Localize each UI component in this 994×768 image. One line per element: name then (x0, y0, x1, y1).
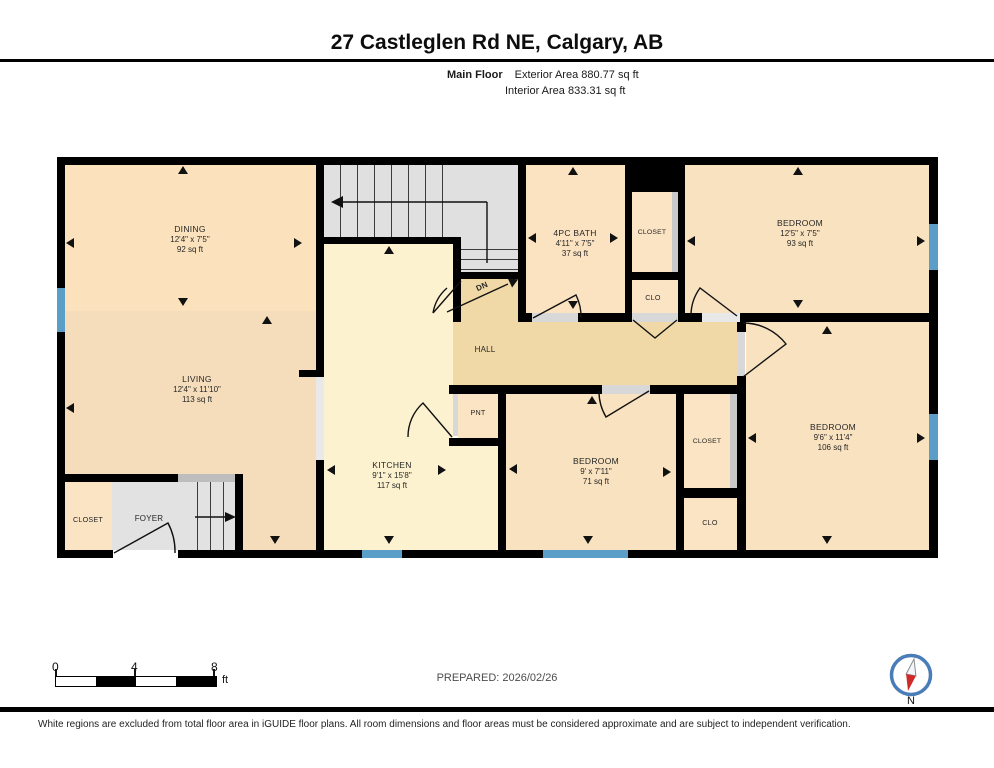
wall-segment (518, 313, 532, 322)
opening-jamb (316, 377, 324, 460)
stairs-landing-treads (454, 240, 518, 270)
wall-segment (498, 385, 506, 550)
page-title: 27 Castleglen Rd NE, Calgary, AB (0, 31, 994, 55)
clo-mid-label: CLO (685, 518, 735, 527)
foyer-landing (178, 474, 235, 482)
exterior-area: Exterior Area 880.77 sq ft (515, 69, 639, 81)
wall-segment (57, 157, 65, 558)
dimension-arrow (568, 167, 578, 175)
room-kitchen (324, 244, 453, 550)
wall-segment (453, 237, 461, 322)
wall-segment (737, 322, 746, 332)
room-dims: 9'1" x 15'8" (332, 471, 452, 481)
window-marker (929, 414, 938, 460)
clo-top-label: CLO (633, 293, 673, 302)
wall-segment (737, 376, 746, 550)
floor-label: Main Floor (447, 69, 503, 81)
wall-segment (316, 460, 324, 550)
wall-segment (454, 272, 518, 279)
door-jamb (738, 332, 745, 376)
wall-segment (57, 550, 938, 558)
dimension-arrow (748, 433, 756, 443)
wall-segment (235, 474, 243, 550)
room-name: LIVING (137, 374, 257, 385)
wall-segment (676, 394, 684, 550)
compass-icon (888, 652, 934, 698)
header-divider (0, 59, 994, 62)
room-area: 71 sq ft (536, 477, 656, 487)
bath-label: 4PC BATH 4'11" x 7'5" 37 sq ft (515, 228, 635, 260)
floorplan-page: 27 Castleglen Rd NE, Calgary, AB Main Fl… (0, 0, 994, 768)
room-area: 113 sq ft (137, 395, 257, 405)
dimension-arrow (793, 300, 803, 308)
room-dims: 9' x 7'11" (536, 467, 656, 477)
dimension-arrow (294, 238, 302, 248)
dimension-arrow (822, 536, 832, 544)
window-marker (57, 288, 65, 332)
prepared-date: PREPARED: 2026/02/26 (0, 672, 994, 684)
dimension-arrow (384, 246, 394, 254)
wall-segment (678, 313, 702, 322)
kitchen-label: KITCHEN 9'1" x 15'8" 117 sq ft (332, 460, 452, 492)
wall-segment (449, 385, 602, 394)
room-dims: 9'6" x 11'4" (773, 433, 893, 443)
dimension-arrow (270, 536, 280, 544)
foyer-label: FOYER (118, 514, 180, 523)
dimension-arrow (262, 316, 272, 324)
compass-north-label: N (903, 695, 919, 707)
room-name: KITCHEN (332, 460, 452, 471)
dimension-arrow (178, 298, 188, 306)
bifold-front (632, 313, 678, 322)
room-name: BEDROOM (740, 218, 860, 229)
wall-segment (650, 385, 737, 394)
dimension-arrow (178, 166, 188, 174)
dimension-arrow (917, 236, 925, 246)
room-name: DINING (130, 224, 250, 235)
entry-door-opening (113, 550, 178, 558)
room-name: 4PC BATH (515, 228, 635, 239)
wall-segment (632, 272, 678, 280)
room-name: BEDROOM (536, 456, 656, 467)
room-area: 92 sq ft (130, 245, 250, 255)
footer-divider (0, 707, 994, 712)
dimension-arrow (66, 403, 74, 413)
closet-entry-label: CLOSET (58, 515, 118, 524)
room-kitchen-lower (453, 446, 498, 550)
floor-summary: Main FloorExterior Area 880.77 sq ft (447, 69, 639, 81)
hall-label: HALL (455, 345, 515, 354)
room-area: 106 sq ft (773, 443, 893, 453)
dining-label: DINING 12'4" x 7'5" 92 sq ft (130, 224, 250, 256)
room-area: 37 sq ft (515, 249, 635, 259)
room-dims: 12'5" x 7'5" (740, 229, 860, 239)
window-marker (543, 550, 628, 558)
wall-segment (929, 157, 938, 558)
closet-mid-label: CLOSET (682, 438, 732, 445)
dimension-arrow (509, 464, 517, 474)
wall-segment (57, 157, 938, 165)
room-dims: 12'4" x 7'5" (130, 235, 250, 245)
wall-segment (299, 370, 316, 377)
wall-segment (578, 313, 632, 322)
wall-segment (316, 165, 324, 377)
wall-segment (678, 165, 685, 322)
bedroom-center-label: BEDROOM 9' x 7'11" 71 sq ft (536, 456, 656, 488)
room-name: BEDROOM (773, 422, 893, 433)
room-area: 93 sq ft (740, 239, 860, 249)
wall-segment (740, 313, 929, 322)
foyer-stairs (185, 482, 235, 550)
dimension-arrow (793, 167, 803, 175)
dimension-arrow (663, 467, 671, 477)
dimension-arrow (687, 236, 695, 246)
room-dims: 12'4" x 11'10" (137, 385, 257, 395)
wall-segment (676, 488, 737, 498)
door-jamb (532, 313, 578, 322)
interior-area: Interior Area 833.31 sq ft (505, 85, 625, 97)
disclaimer-text: White regions are excluded from total fl… (38, 719, 978, 730)
dimension-arrow (384, 536, 394, 544)
closet-top-label: CLOSET (630, 229, 674, 236)
door-jamb (702, 313, 740, 322)
bedroom-top-right-label: BEDROOM 12'5" x 7'5" 93 sq ft (740, 218, 860, 250)
dimension-arrow (587, 396, 597, 404)
dimension-arrow (568, 301, 578, 309)
wall-segment (632, 165, 678, 192)
living-label: LIVING 12'4" x 11'10" 113 sq ft (137, 374, 257, 406)
stairs-upper-flight (324, 165, 454, 237)
dimension-arrow (66, 238, 74, 248)
wall-segment (65, 474, 178, 482)
pantry-label: PNT (458, 408, 498, 417)
room-area: 117 sq ft (332, 481, 452, 491)
door-jamb (602, 385, 650, 394)
wall-segment (324, 237, 454, 244)
dimension-arrow (917, 433, 925, 443)
window-marker (929, 224, 938, 270)
dimension-arrow (583, 536, 593, 544)
bedroom-right-label: BEDROOM 9'6" x 11'4" 106 sq ft (773, 422, 893, 454)
room-dims: 4'11" x 7'5" (515, 239, 635, 249)
dimension-arrow (822, 326, 832, 334)
window-marker (362, 550, 402, 558)
